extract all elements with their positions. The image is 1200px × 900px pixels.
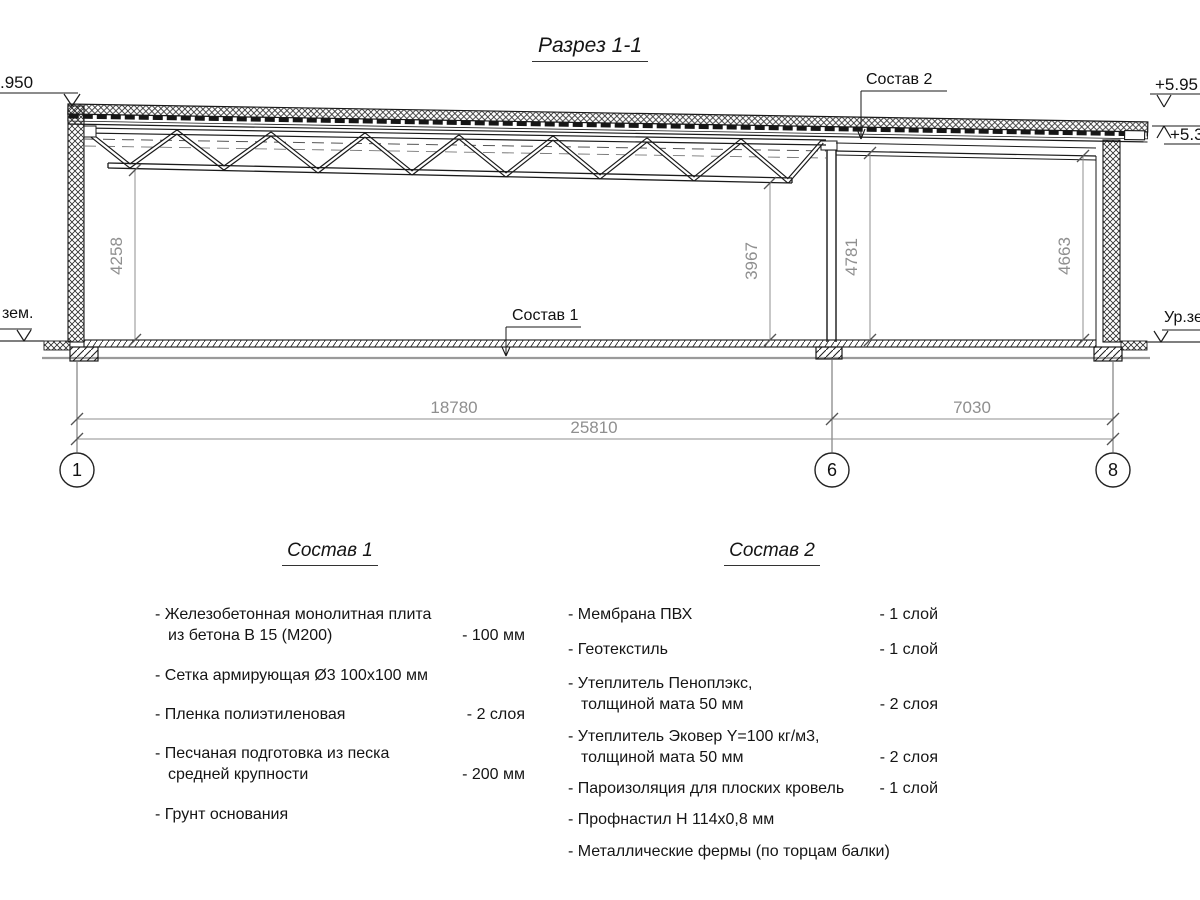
elev-right-mid-label: +5.38: [1170, 125, 1200, 144]
list-item: - Металлические фермы (по торцам балки): [568, 841, 938, 862]
list-item: - Утеплитель Эковер Y=100 кг/м3, толщино…: [568, 726, 938, 768]
axis-bubble-6: 6: [815, 453, 849, 487]
dim-vertical-4781: 4781: [842, 147, 876, 346]
section-drawing-sheet: Разрез 1-1: [0, 0, 1200, 900]
sostav2-leader-label: Состав 2: [866, 71, 932, 88]
section-drawing: зем. Ур.зе .950 +5.95 +5.: [0, 0, 1200, 520]
list-item: - Мембрана ПВХ - 1 слой: [568, 604, 938, 625]
ground-level-left: зем.: [0, 305, 34, 341]
elev-right-top-label: +5.95: [1155, 75, 1198, 94]
right-bay-ceiling: [836, 143, 1096, 160]
sostav2-heading: Состав 2: [672, 540, 872, 566]
list-item: - Пленка полиэтиленовая - 2 слоя: [155, 704, 525, 725]
dim-vertical-4258: 4258: [107, 164, 141, 346]
list-item: - Сетка армирующая Ø3 100х100 мм: [155, 665, 525, 686]
dim-span1-label: 18780: [430, 398, 477, 417]
dim-v1-label: 4258: [107, 237, 126, 275]
sostav1-heading: Состав 1: [230, 540, 430, 566]
ground-right-label: Ур.зе: [1164, 309, 1200, 326]
list-item: - Песчаная подготовка из песка средней к…: [155, 743, 525, 785]
axis-bubble-8: 8: [1096, 453, 1130, 487]
elevation-mark-top-right: +5.95: [1150, 75, 1200, 107]
ground-left-label: зем.: [2, 305, 34, 322]
list-item: - Грунт основания: [155, 804, 525, 825]
dim-vertical-4663: 4663: [1055, 150, 1089, 346]
roof-edge-cap: [1125, 131, 1145, 140]
middle-wall: [821, 141, 837, 342]
leader-sostav-1: Состав 1: [502, 307, 581, 356]
dim-total-label: 25810: [570, 418, 617, 437]
sostav1-leader-label: Состав 1: [512, 307, 578, 324]
axis-8-label: 8: [1108, 460, 1118, 480]
right-wall: [1096, 140, 1120, 342]
list-item: - Пароизоляция для плоских кровель - 1 с…: [568, 778, 938, 799]
axis-bubble-1: 1: [60, 453, 94, 487]
list-item: - Профнастил Н 114х0,8 мм: [568, 809, 938, 830]
elev-left-label: .950: [0, 73, 33, 92]
list-item: - Железобетонная монолитная плита из бет…: [155, 604, 525, 646]
ground-level-right: Ур.зе: [1154, 309, 1200, 342]
dim-span2-label: 7030: [953, 398, 991, 417]
dim-v4-label: 4663: [1055, 237, 1074, 275]
dim-vertical-3967: 3967: [742, 177, 776, 346]
elevation-mark-right-mid: +5.38: [1152, 125, 1200, 144]
dim-v3-label: 4781: [842, 238, 861, 276]
axis-6-label: 6: [827, 460, 837, 480]
axis-1-label: 1: [72, 460, 82, 480]
list-item: - Геотекстиль - 1 слой: [568, 639, 938, 660]
list-item: - Утеплитель Пеноплэкс, толщиной мата 50…: [568, 673, 938, 715]
left-wall: [68, 106, 84, 342]
elevation-mark-top-left: .950: [0, 73, 80, 106]
dim-v2-label: 3967: [742, 242, 761, 280]
dim-horizontal: 18780 7030 25810: [71, 358, 1119, 452]
floor-slab: [42, 340, 1150, 358]
